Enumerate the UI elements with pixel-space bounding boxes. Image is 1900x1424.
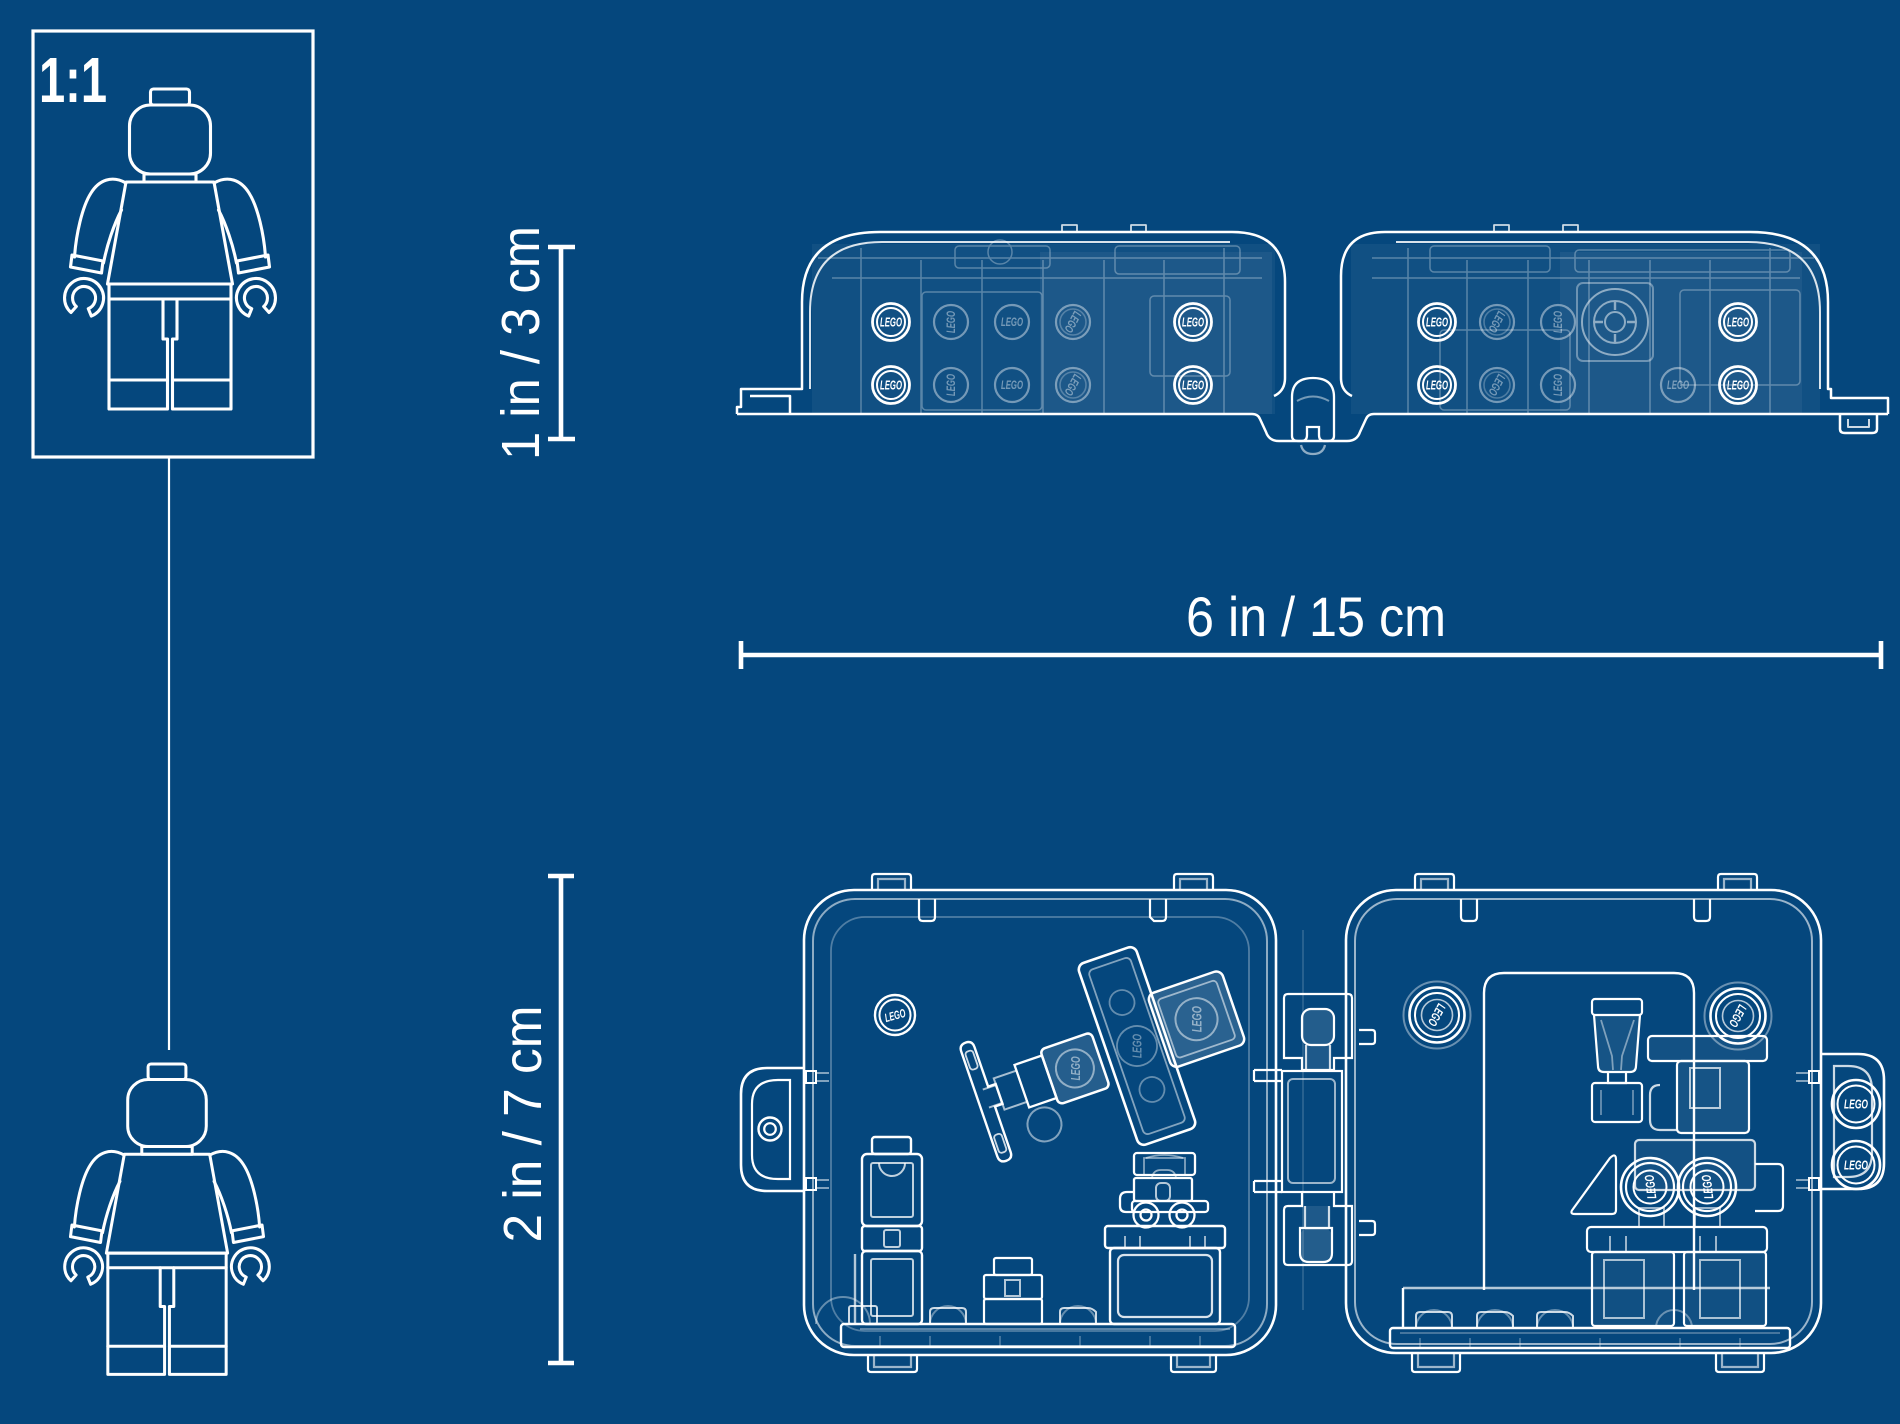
svg-text:LEGO: LEGO [1642, 1174, 1660, 1200]
svg-text:1:1: 1:1 [39, 44, 107, 116]
svg-text:LEGO: LEGO [1068, 1056, 1083, 1080]
svg-text:LEGO: LEGO [1189, 1006, 1205, 1032]
svg-text:6 in / 15 cm: 6 in / 15 cm [1186, 585, 1446, 648]
svg-text:2 in / 7 cm: 2 in / 7 cm [493, 1006, 553, 1243]
svg-text:1 in / 3 cm: 1 in / 3 cm [491, 226, 551, 460]
svg-text:LEGO: LEGO [1130, 1034, 1145, 1058]
svg-text:LEGO: LEGO [1699, 1174, 1717, 1200]
